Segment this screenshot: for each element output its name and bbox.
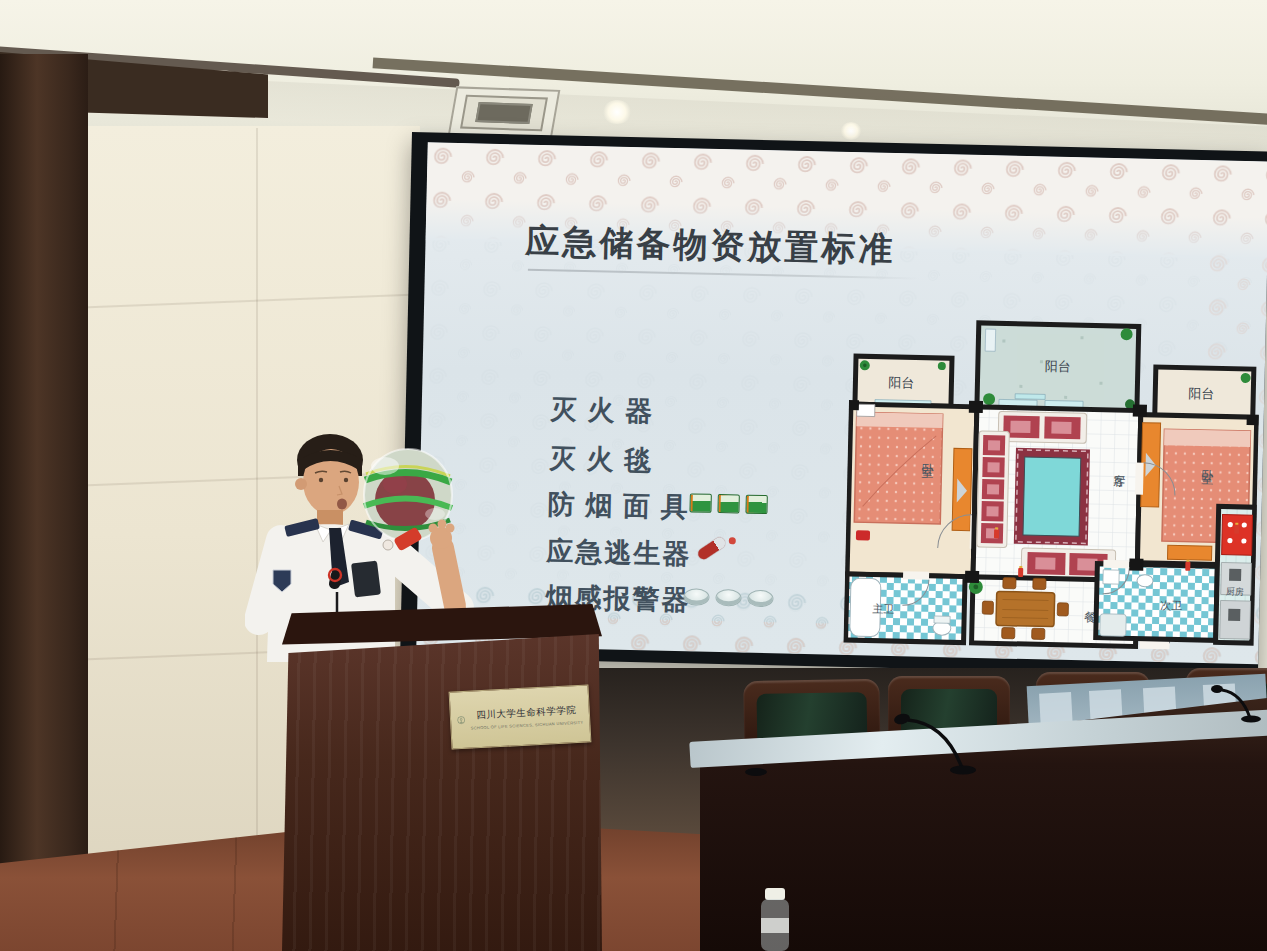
floorplan-master-bathroom: 主卫 xyxy=(846,570,966,643)
smoke-mask-pack-icon xyxy=(717,494,739,513)
downlight-icon xyxy=(840,122,862,140)
floorplan-balcony-center: 阳台 xyxy=(977,323,1139,413)
escape-device-icons xyxy=(697,543,736,555)
conference-room-photo: 应急储备物资放置标准 灭 火 器 灭 火 毯 防 烟 面 具 应急逃生器 烟感报… xyxy=(0,0,1267,951)
escape-device-cap-icon xyxy=(729,537,736,544)
smoke-mask-pack-icons xyxy=(689,493,767,514)
presentation-slide: 应急储备物资放置标准 灭 火 器 灭 火 毯 防 烟 面 具 应急逃生器 烟感报… xyxy=(416,142,1267,664)
slide-item: 防 烟 面 具 xyxy=(547,486,690,523)
smoke-alarm-icons xyxy=(683,588,773,607)
wood-column xyxy=(0,54,88,951)
floorplan-second-bathroom: 次卫 xyxy=(1096,560,1218,641)
smoke-mask-pack-icon xyxy=(745,495,767,514)
podium-front xyxy=(282,634,602,951)
smoke-alarm-icon xyxy=(683,588,709,606)
podium: 四川大学生命科学学院 SCHOOL OF LIFE SCIENCES, SICH… xyxy=(282,596,602,951)
master-bathroom-label: 主卫 xyxy=(872,603,894,615)
presenter-neck xyxy=(317,510,343,526)
slide-item: 灭 火 器 xyxy=(549,391,654,427)
floorplan-bedroom-left: 卧室 xyxy=(847,404,981,577)
ceiling-vent xyxy=(448,86,561,139)
led-screen: 应急储备物资放置标准 灭 火 器 灭 火 毯 防 烟 面 具 应急逃生器 烟感报… xyxy=(400,132,1267,676)
second-bathroom-label: 次卫 xyxy=(1160,599,1182,611)
kitchen-label: 厨房 xyxy=(1226,587,1244,597)
smoke-alarm-icon xyxy=(715,589,741,607)
university-seal-icon xyxy=(456,705,466,735)
floor-plan: 阳台 阳台 xyxy=(843,316,1260,655)
smoke-mask-pack-icon xyxy=(689,493,711,512)
podium-plaque: 四川大学生命科学学院 SCHOOL OF LIFE SCIENCES, SICH… xyxy=(449,684,592,749)
balcony-label: 阳台 xyxy=(888,375,914,391)
slide-title: 应急储备物资放置标准 xyxy=(525,219,896,273)
floorplan-balcony-left: 阳台 xyxy=(855,356,952,407)
balcony-label: 阳台 xyxy=(1188,386,1214,402)
downlight-icon xyxy=(602,100,632,124)
floorplan-living-room: 客厅 xyxy=(973,407,1141,583)
balcony-label: 阳台 xyxy=(1045,358,1071,374)
slide-item: 灭 火 毯 xyxy=(548,440,653,476)
chest-badge xyxy=(351,561,381,598)
floorplan-balcony-right: 阳台 xyxy=(1155,367,1254,419)
smoke-alarm-icon xyxy=(747,590,773,608)
slide-item: 应急逃生器 xyxy=(546,533,692,570)
water-bottle xyxy=(757,888,793,951)
